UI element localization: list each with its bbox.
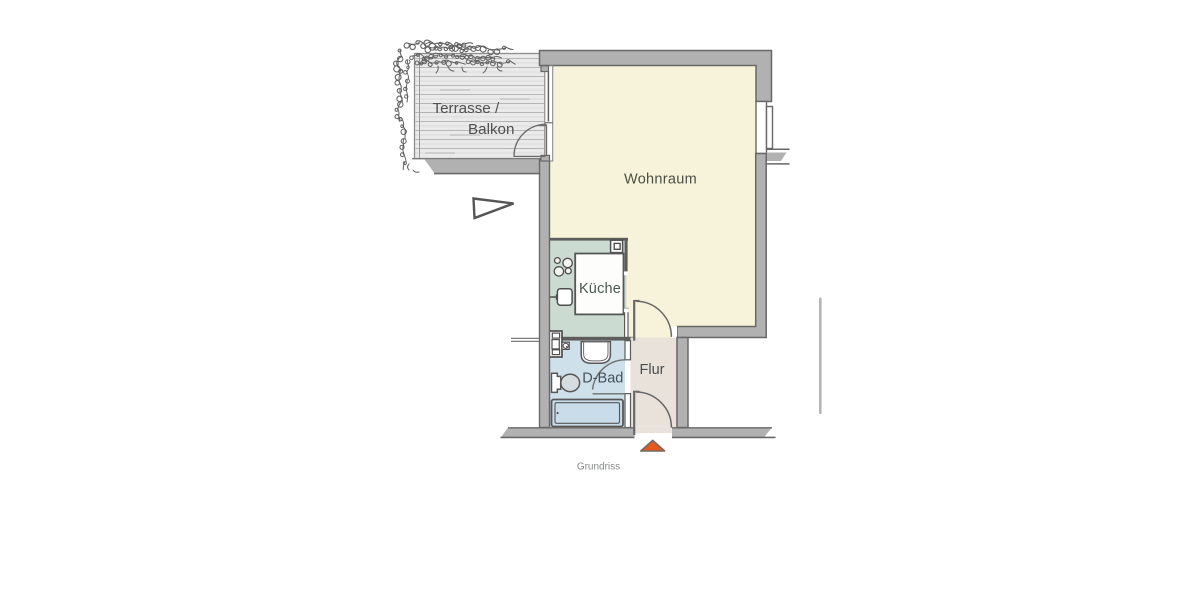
svg-text:Flur: Flur <box>640 362 665 378</box>
svg-text:Terrasse /: Terrasse / <box>433 100 500 117</box>
svg-text:Küche: Küche <box>579 281 621 297</box>
svg-text:Balkon: Balkon <box>468 121 514 138</box>
svg-text:Wohnraum: Wohnraum <box>624 172 697 188</box>
svg-text:Grundriss: Grundriss <box>577 462 620 473</box>
svg-text:D-Bad: D-Bad <box>582 371 623 387</box>
